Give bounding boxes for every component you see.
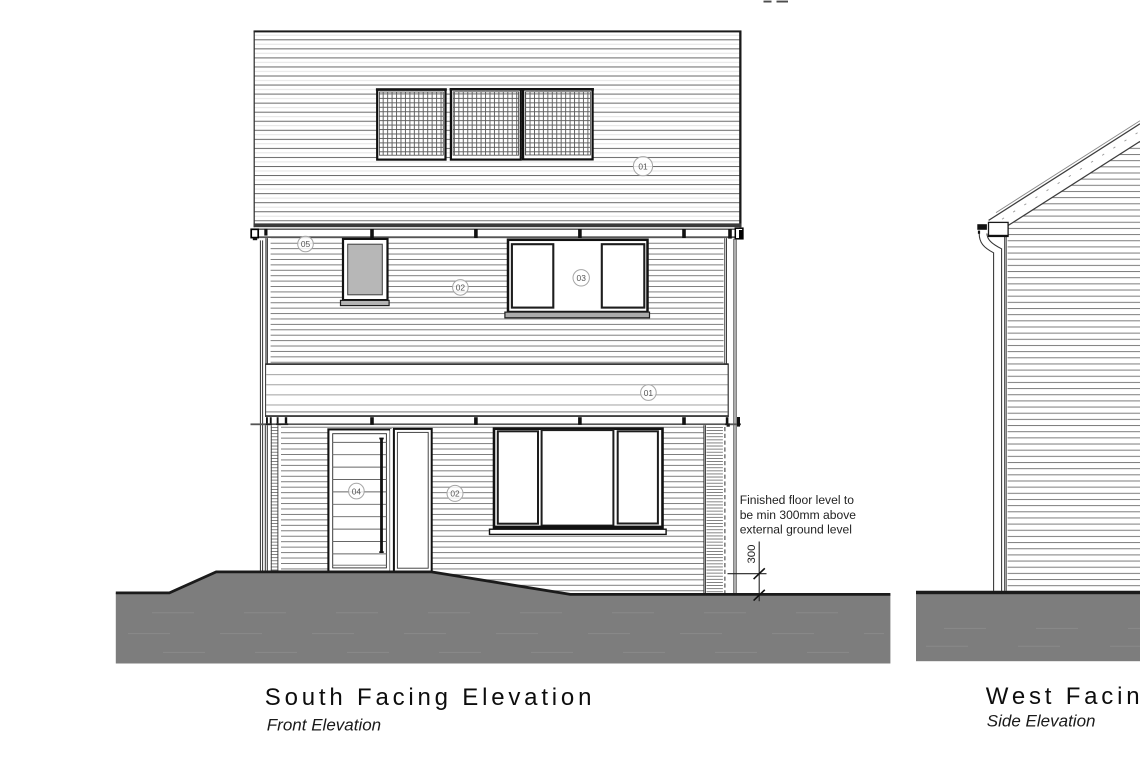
svg-text:Front Elevation: Front Elevation (267, 716, 381, 735)
svg-text:04: 04 (352, 486, 362, 496)
svg-text:02: 02 (450, 489, 460, 499)
svg-text:01: 01 (644, 388, 654, 398)
svg-text:be min 300mm above: be min 300mm above (740, 508, 857, 522)
svg-text:02: 02 (456, 283, 466, 293)
svg-text:external ground level: external ground level (740, 523, 852, 537)
svg-text:Side Elevation: Side Elevation (987, 711, 1096, 730)
svg-text:West Facing Elevation: West Facing Elevation (986, 683, 1140, 710)
svg-text:03: 03 (577, 273, 587, 283)
svg-text:05: 05 (301, 239, 311, 249)
svg-text:Finished floor level to: Finished floor level to (740, 493, 855, 507)
svg-text:South Facing Elevation: South Facing Elevation (265, 684, 595, 711)
svg-text:300: 300 (746, 545, 758, 564)
svg-text:01: 01 (638, 161, 648, 171)
